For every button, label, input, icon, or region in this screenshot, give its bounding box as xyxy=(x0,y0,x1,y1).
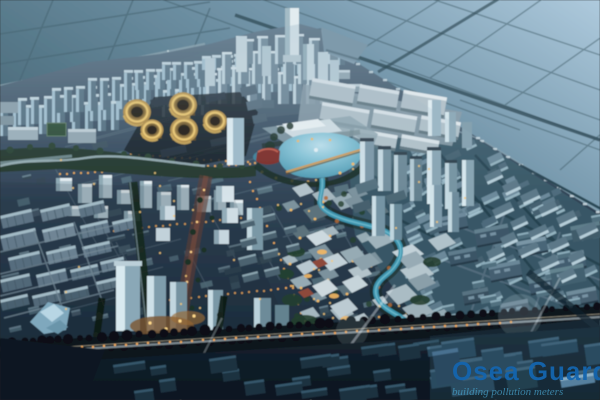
svg-text:Osea Guard: Osea Guard xyxy=(452,356,600,386)
svg-text:building pollution meters: building pollution meters xyxy=(452,386,563,398)
